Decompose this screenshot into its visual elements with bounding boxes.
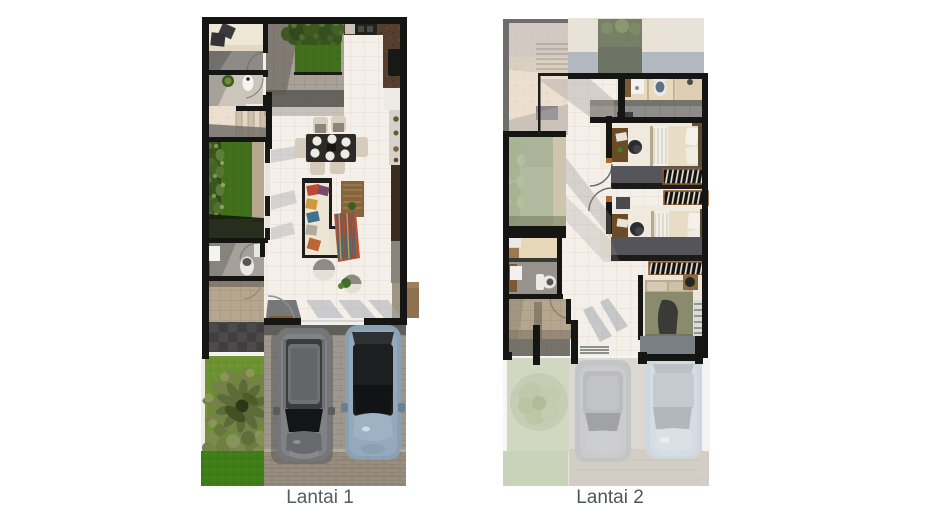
svg-text:Lantai 1: Lantai 1 [286,487,354,508]
svg-text:Lantai 2: Lantai 2 [576,487,644,508]
